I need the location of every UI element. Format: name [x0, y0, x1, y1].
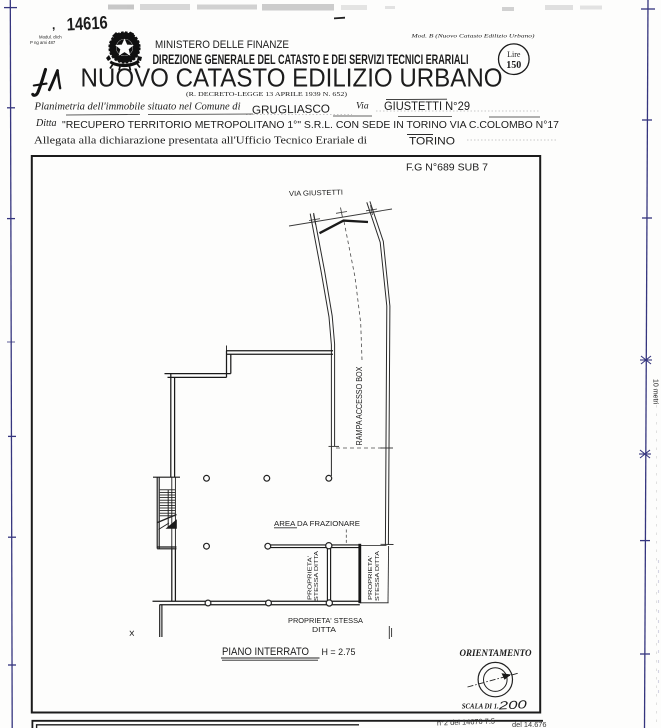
svg-text:PROPRIETA': PROPRIETA': [308, 556, 314, 600]
svg-text:Allegata alla dichiarazione pr: Allegata alla dichiarazione presentata a…: [34, 135, 367, 146]
svg-text:DITTA: DITTA: [312, 625, 337, 634]
svg-text:VIA GIUSTETTI: VIA GIUSTETTI: [289, 188, 343, 198]
svg-text:14616: 14616: [66, 12, 108, 34]
svg-text:150: 150: [506, 60, 521, 71]
svg-text:GIUSTETTI N°29: GIUSTETTI N°29: [384, 100, 470, 113]
svg-text:NUOVO CATASTO EDILIZIO URBANO: NUOVO CATASTO EDILIZIO URBANO: [81, 65, 503, 93]
svg-text:PIANO INTERRATO: PIANO INTERRATO: [222, 646, 309, 658]
svg-text:STESSA DITTA: STESSA DITTA: [314, 551, 320, 601]
svg-text:"RECUPERO TERRITORIO METROPOLI: "RECUPERO TERRITORIO METROPOLITANO 1°" S…: [62, 120, 559, 131]
svg-text:200: 200: [497, 699, 528, 713]
svg-text:P ng ami 487: P ng ami 487: [30, 40, 56, 45]
svg-text:RAMPA ACCESSO BOX: RAMPA ACCESSO BOX: [354, 366, 364, 445]
svg-text:Ditta: Ditta: [35, 118, 57, 129]
svg-text:H = 2.75: H = 2.75: [322, 647, 356, 658]
svg-text:AREA DA FRAZIONARE: AREA DA FRAZIONARE: [274, 519, 360, 528]
svg-text:GRUGLIASCO: GRUGLIASCO: [252, 102, 330, 116]
svg-text:Lire: Lire: [507, 50, 521, 59]
svg-text:del 14.676: del 14.676: [512, 720, 547, 728]
svg-text:Via: Via: [356, 101, 369, 112]
svg-text:Planimetria dell'immobile situ: Planimetria dell'immobile situato nel Co…: [34, 101, 241, 112]
svg-text:Mod. B (Nuovo Catasto Edilizio: Mod. B (Nuovo Catasto Edilizio Urbano): [410, 33, 535, 40]
svg-text:SCALA DI 1.: SCALA DI 1.: [462, 703, 499, 711]
svg-text:Modul. clich: Modul. clich: [39, 35, 62, 40]
svg-text:STESSA DITTA: STESSA DITTA: [375, 551, 381, 601]
svg-text:ORIENTAMENTO: ORIENTAMENTO: [460, 649, 532, 659]
svg-text:F.G N°689 SUB 7: F.G N°689 SUB 7: [406, 163, 488, 174]
svg-text:TORINO: TORINO: [409, 136, 455, 148]
svg-text:10 metri: 10 metri: [652, 379, 659, 405]
svg-text:(R. DECRETO-LEGGE 13 APRILE 19: (R. DECRETO-LEGGE 13 APRILE 1939 N. 652): [186, 91, 347, 98]
svg-text:PROPRIETA': PROPRIETA': [368, 556, 374, 600]
svg-text:MINISTERO DELLE FINANZE: MINISTERO DELLE FINANZE: [155, 39, 289, 51]
svg-text:,: ,: [52, 18, 55, 32]
